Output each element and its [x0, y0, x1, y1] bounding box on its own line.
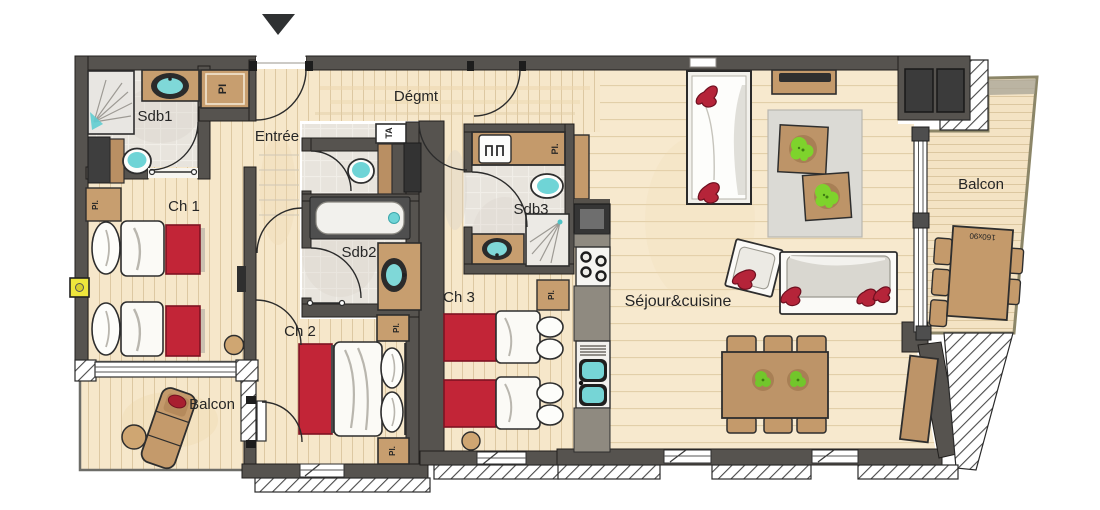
svg-text:Pl.: Pl. — [547, 290, 556, 300]
svg-text:Sdb1: Sdb1 — [137, 108, 172, 125]
svg-text:Balcon: Balcon — [189, 396, 235, 413]
svg-text:TA: TA — [384, 127, 394, 139]
svg-text:Dégmt: Dégmt — [394, 88, 439, 105]
svg-text:Ch 1: Ch 1 — [168, 198, 200, 215]
svg-text:Séjour&cuisine: Séjour&cuisine — [625, 293, 732, 310]
svg-text:Ch 3: Ch 3 — [443, 289, 475, 306]
svg-text:Balcon: Balcon — [958, 176, 1004, 193]
svg-text:160x90: 160x90 — [969, 231, 996, 242]
svg-text:Pl.: Pl. — [91, 200, 100, 210]
svg-text:Ch 2: Ch 2 — [284, 323, 316, 340]
svg-text:Pl.: Pl. — [388, 446, 397, 456]
svg-text:Sdb3: Sdb3 — [513, 201, 548, 218]
svg-text:Pl.: Pl. — [392, 323, 401, 333]
svg-text:PI: PI — [217, 84, 229, 94]
svg-text:Entrée: Entrée — [255, 128, 299, 145]
svg-text:Sdb2: Sdb2 — [341, 244, 376, 261]
svg-text:Pl.: Pl. — [550, 143, 560, 154]
